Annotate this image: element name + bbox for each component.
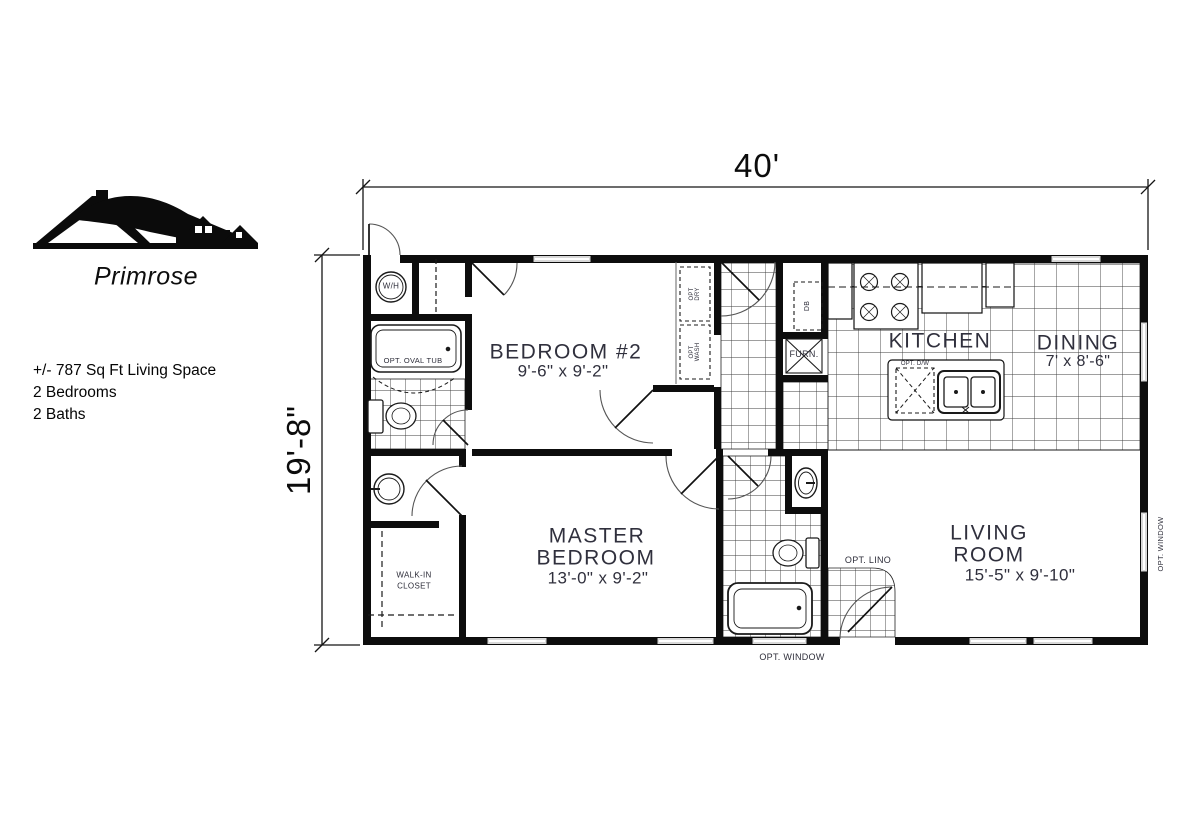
- closet-rod-lines: [368, 531, 456, 630]
- room-label-dining: DINING: [1037, 331, 1120, 354]
- spec-living-space: +/- 787 Sq Ft Living Space: [33, 360, 216, 382]
- label-opt-dishwasher: OPT. D/W: [901, 361, 929, 367]
- washer-dryer-boxes: [676, 262, 710, 384]
- bathtub-icon: [728, 583, 812, 634]
- label-opt-dry-2: DRY: [695, 287, 701, 300]
- room-label-living-2: ROOM: [953, 543, 1024, 566]
- label-opt-dry: OPT DRY: [689, 287, 701, 300]
- label-drop-box: DB: [804, 301, 812, 311]
- label-opt-window-right: OPT. WINDOW: [1157, 517, 1165, 572]
- room-label-master-2: BEDROOM: [536, 546, 655, 569]
- label-walkin-1: WALK-IN: [396, 572, 431, 581]
- dimension-width-label: 40': [734, 148, 780, 184]
- room-dims-dining: 7' x 8'-6": [1046, 353, 1111, 371]
- model-name: Primrose: [94, 263, 198, 291]
- toilet-icon: [773, 538, 819, 568]
- room-dims-living: 15'-5" x 9'-10": [965, 567, 1076, 586]
- label-walkin-2: CLOSET: [397, 583, 431, 592]
- spec-list: +/- 787 Sq Ft Living Space 2 Bedrooms 2 …: [33, 360, 216, 426]
- room-label-living-1: LIVING: [950, 521, 1028, 544]
- room-label-master-1: MASTER: [549, 524, 646, 547]
- sink-icon: [371, 474, 404, 504]
- spec-bedrooms: 2 Bedrooms: [33, 382, 216, 404]
- floorplan-sheet: Primrose +/- 787 Sq Ft Living Space 2 Be…: [0, 0, 1200, 818]
- spec-baths: 2 Baths: [33, 404, 216, 426]
- label-opt-oval-tub: OPT. OVAL TUB: [384, 357, 443, 365]
- label-opt-lino: OPT. LINO: [845, 556, 891, 566]
- sink-icon: [795, 468, 817, 498]
- room-label-bedroom2: BEDROOM #2: [490, 340, 643, 363]
- label-opt-wash: OPT WASH: [689, 343, 701, 362]
- label-furnace: FURN.: [790, 350, 819, 360]
- label-opt-window-bottom: OPT. WINDOW: [759, 653, 824, 663]
- label-opt-wash-2: WASH: [695, 343, 701, 362]
- room-dims-bedroom2: 9'-6" x 9'-2": [518, 363, 609, 382]
- builder-logo-art: [33, 190, 258, 249]
- dimension-depth-label: 19'-8": [281, 405, 317, 495]
- room-label-kitchen: KITCHEN: [889, 329, 992, 352]
- label-water-heater: W/H: [383, 283, 399, 292]
- room-dims-master: 13'-0" x 9'-2": [548, 570, 649, 589]
